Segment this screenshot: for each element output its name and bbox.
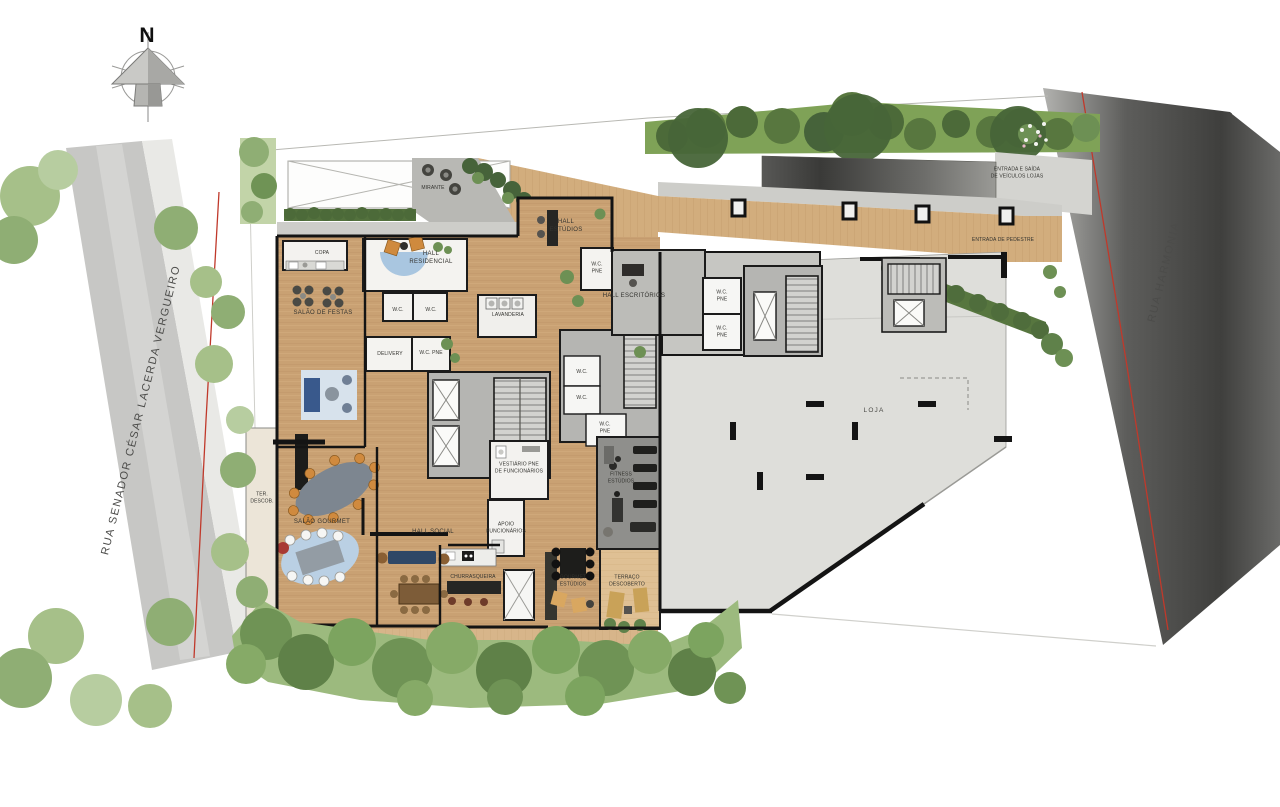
north-compass-icon [112, 32, 184, 122]
washers [486, 298, 523, 309]
room-fitness [597, 437, 660, 549]
loja-core [882, 258, 946, 332]
room-wc-a [383, 293, 413, 321]
plan-drawing [0, 0, 1280, 807]
site-plan: N RUA SENADOR CÉSAR LACERDA VERGUEIRO RU… [0, 0, 1280, 807]
room-wc-pne-estudios [581, 248, 613, 290]
room-wc-b [413, 293, 447, 321]
room-wc-pne-2 [703, 314, 741, 350]
room-delivery [366, 337, 412, 371]
room-wc-c [564, 356, 600, 386]
room-terraco [600, 549, 660, 633]
room-wc-d [564, 386, 600, 414]
room-wc-pne-1 [703, 278, 741, 314]
estudios-core [560, 330, 660, 446]
office-core [744, 266, 822, 356]
storage-room [504, 570, 534, 620]
